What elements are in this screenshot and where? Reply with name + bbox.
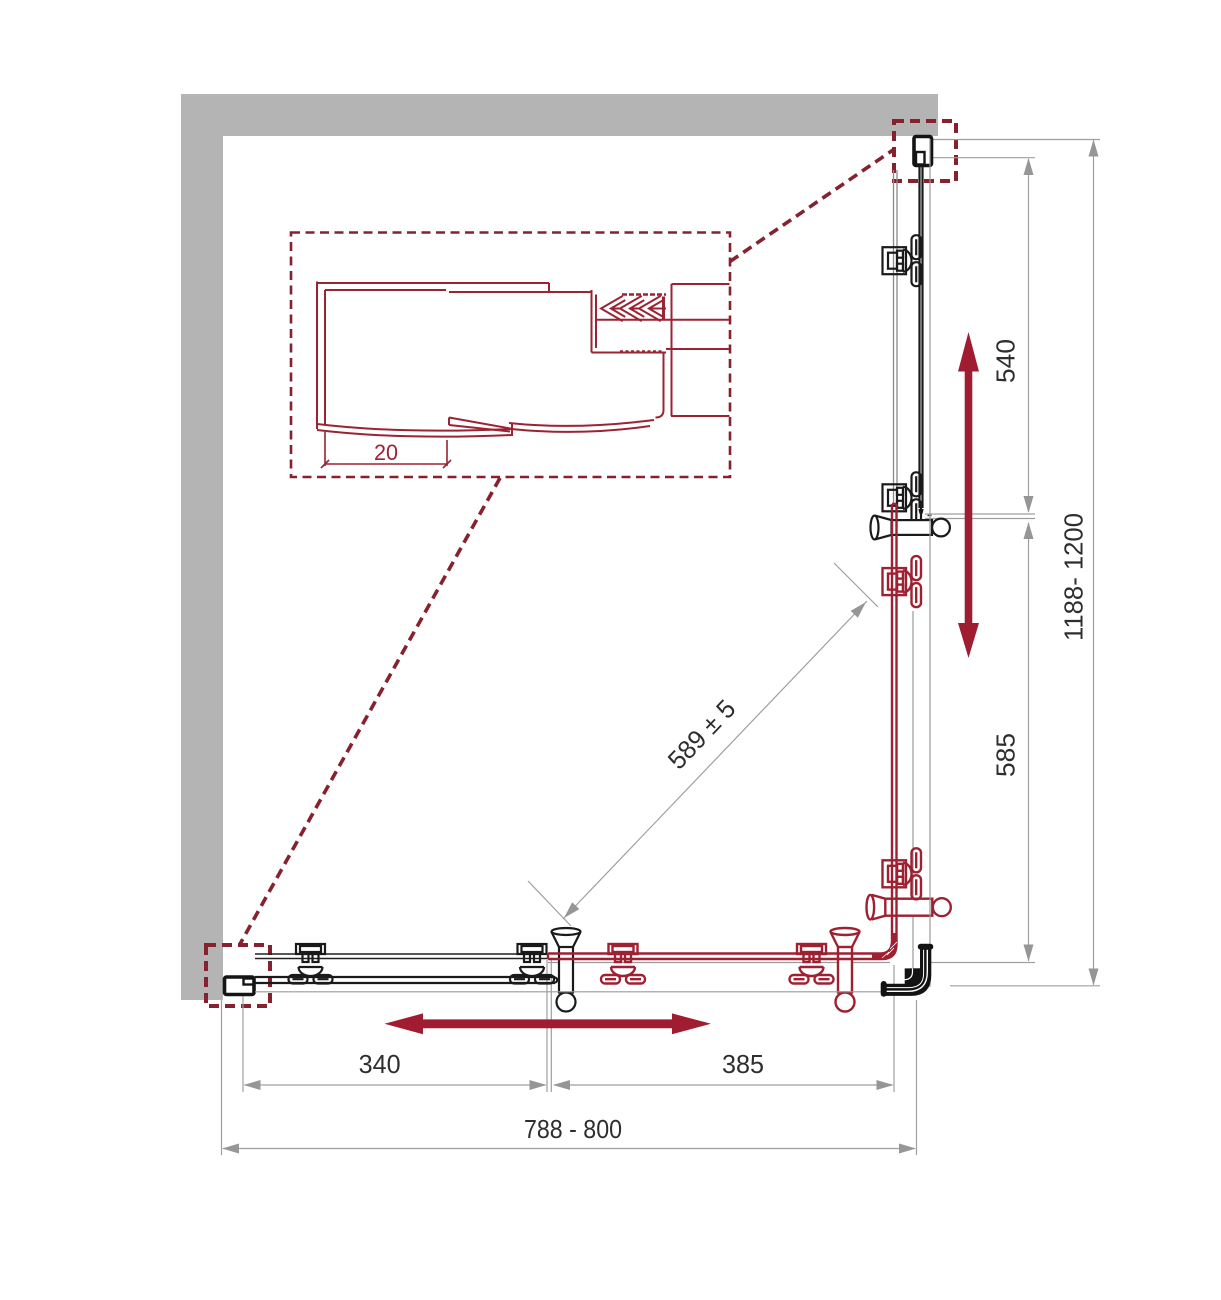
svg-text:1188- 1200: 1188- 1200 (1059, 513, 1089, 641)
svg-text:340: 340 (359, 1049, 401, 1079)
svg-text:589 ± 5: 589 ± 5 (662, 694, 742, 775)
svg-text:540: 540 (991, 339, 1021, 383)
svg-text:385: 385 (722, 1049, 764, 1079)
svg-text:788 - 800: 788 - 800 (524, 1114, 622, 1144)
svg-text:585: 585 (991, 733, 1021, 777)
svg-text:20: 20 (374, 440, 398, 465)
